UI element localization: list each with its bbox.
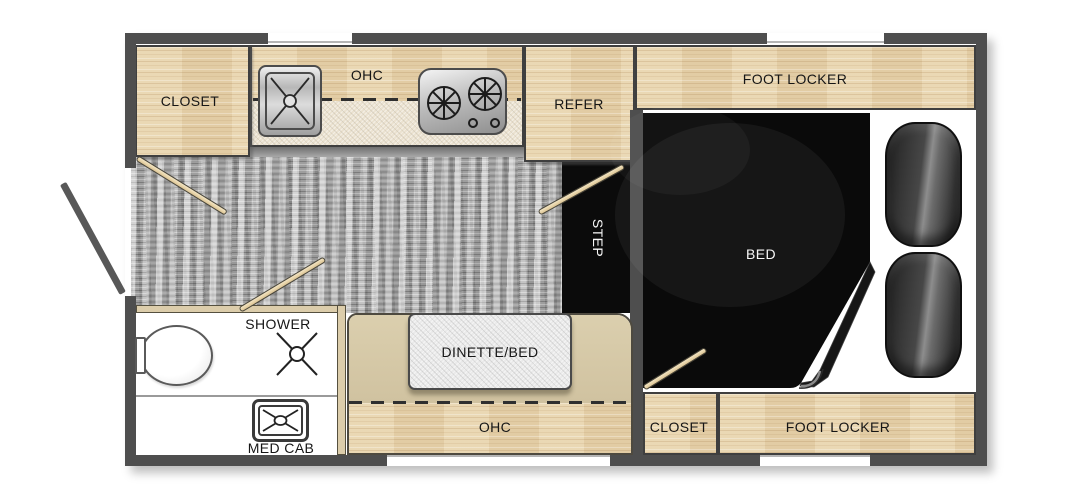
window-opening	[387, 455, 610, 457]
toilet-icon	[135, 337, 146, 374]
label-shower: SHOWER	[245, 317, 310, 331]
label-foot-locker-rear: FOOT LOCKER	[786, 420, 891, 434]
label-closet-rear: CLOSET	[650, 420, 708, 434]
label-foot-locker-front: FOOT LOCKER	[743, 72, 848, 86]
wall-bottom	[610, 455, 760, 466]
label-dinette-bed: DINETTE/BED	[442, 345, 539, 359]
wall-bottom	[870, 455, 987, 466]
window-opening	[268, 41, 352, 43]
wall-left	[125, 296, 136, 466]
label-ohc-front: OHC	[351, 68, 383, 82]
bathroom-wall-right	[337, 305, 346, 455]
label-step: STEP	[591, 219, 605, 257]
floorplan-canvas: CLOSET OHC REFER FOOT LOCKER BED STEP SH…	[0, 0, 1080, 503]
pillow-icon	[885, 252, 962, 378]
sink-icon	[258, 65, 322, 137]
bathroom-divider	[136, 395, 337, 397]
toilet-icon	[140, 325, 213, 386]
wall-top	[352, 33, 767, 44]
pillow-icon	[885, 122, 962, 247]
stove-icon	[418, 68, 507, 135]
window-opening	[760, 455, 870, 457]
shower-drain-icon	[272, 330, 322, 378]
label-closet-front: CLOSET	[161, 94, 219, 108]
wall-left	[125, 33, 136, 168]
wall-right	[976, 33, 987, 466]
label-ohc-rear: OHC	[479, 420, 511, 434]
wall-top	[884, 33, 987, 44]
label-med-cab: MED CAB	[248, 441, 315, 455]
window-opening	[767, 41, 884, 43]
wall-top	[125, 33, 268, 44]
label-refer: REFER	[554, 97, 603, 111]
med-cab-icon	[252, 399, 309, 442]
dinette-dashed-line	[349, 401, 631, 404]
label-bed: BED	[746, 247, 776, 261]
wall-bottom	[125, 455, 387, 466]
